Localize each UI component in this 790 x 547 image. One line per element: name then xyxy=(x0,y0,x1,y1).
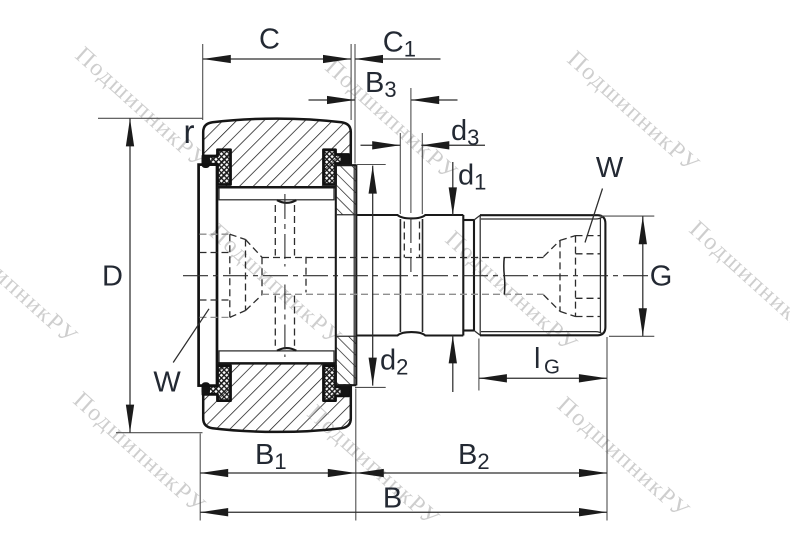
svg-text:r: r xyxy=(184,113,195,150)
svg-text:D: D xyxy=(102,260,123,292)
svg-text:W: W xyxy=(596,152,624,184)
svg-text:C: C xyxy=(259,24,280,56)
svg-text:G: G xyxy=(650,260,673,292)
svg-text:B: B xyxy=(383,483,402,515)
svg-text:W: W xyxy=(153,366,181,398)
